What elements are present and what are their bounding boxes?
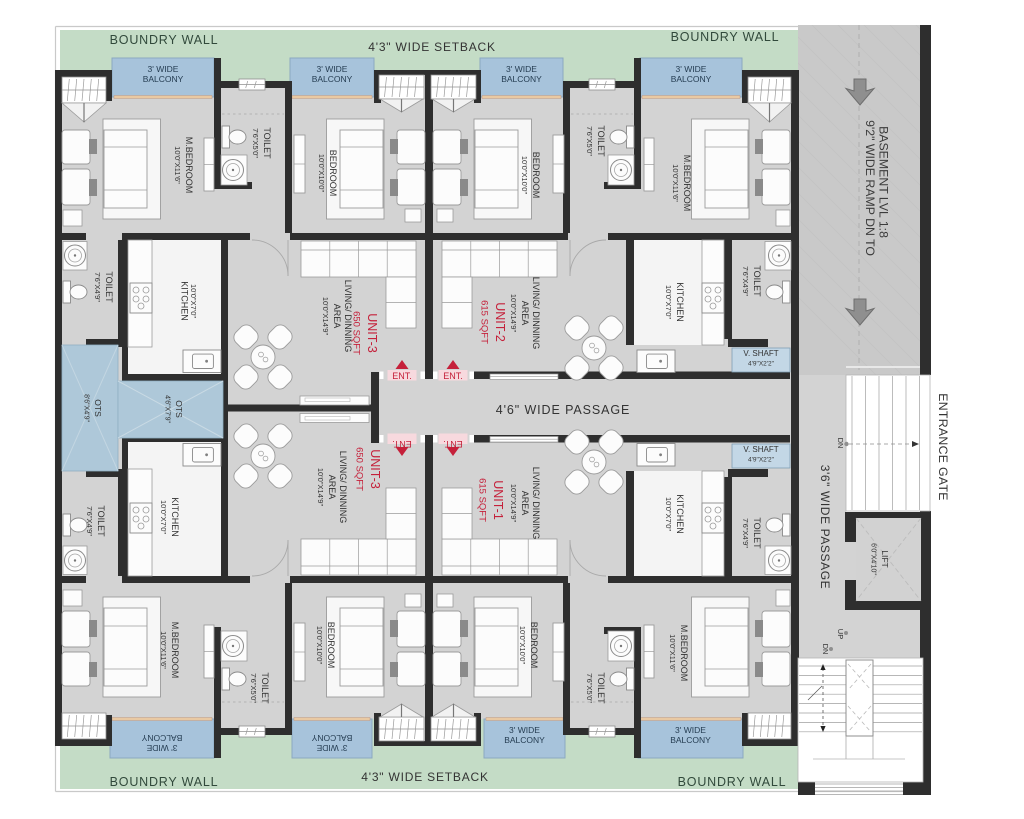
- svg-text:BOUNDRY WALL: BOUNDRY WALL: [110, 775, 219, 789]
- svg-text:ENTRANCE GATE: ENTRANCE GATE: [936, 393, 950, 501]
- svg-text:ENT.: ENT.: [443, 439, 463, 449]
- svg-text:3' WIDEBALCONY: 3' WIDEBALCONY: [504, 725, 545, 745]
- svg-text:ENT.: ENT.: [392, 439, 412, 449]
- svg-text:4'3" WIDE SETBACK: 4'3" WIDE SETBACK: [361, 770, 489, 784]
- svg-text:4'3" WIDE SETBACK: 4'3" WIDE SETBACK: [368, 40, 496, 54]
- svg-text:3' WIDEBALCONY: 3' WIDEBALCONY: [312, 64, 353, 84]
- svg-text:BOUNDRY WALL: BOUNDRY WALL: [678, 775, 787, 789]
- svg-text:3'6" WIDE PASSAGE: 3'6" WIDE PASSAGE: [818, 465, 832, 590]
- svg-text:3' WIDEBALCONY: 3' WIDEBALCONY: [501, 64, 542, 84]
- svg-text:BOUNDRY WALL: BOUNDRY WALL: [671, 30, 780, 44]
- svg-text:3' WIDEBALCONY: 3' WIDEBALCONY: [671, 64, 712, 84]
- svg-text:3' WIDEBALCONY: 3' WIDEBALCONY: [670, 725, 711, 745]
- svg-text:UP: UP: [836, 629, 845, 639]
- svg-text:3' WIDEBALCONY: 3' WIDEBALCONY: [141, 733, 182, 753]
- svg-text:BASEMENT LVL 1:8: BASEMENT LVL 1:8: [877, 126, 891, 238]
- svg-text:ENT.: ENT.: [392, 371, 412, 381]
- svg-text:BOUNDRY WALL: BOUNDRY WALL: [110, 33, 219, 47]
- svg-text:ENT.: ENT.: [443, 371, 463, 381]
- svg-text:4'6" WIDE PASSAGE: 4'6" WIDE PASSAGE: [496, 403, 630, 417]
- svg-text:3' WIDEBALCONY: 3' WIDEBALCONY: [143, 64, 184, 84]
- svg-text:9'2" WIDE RAMP DN TO: 9'2" WIDE RAMP DN TO: [863, 120, 877, 256]
- svg-text:DN: DN: [836, 438, 845, 449]
- svg-text:3' WIDEBALCONY: 3' WIDEBALCONY: [311, 733, 352, 753]
- svg-text:DN: DN: [821, 644, 830, 655]
- svg-text:10'0"X7'0"KITCHEN: 10'0"X7'0"KITCHEN: [180, 281, 199, 321]
